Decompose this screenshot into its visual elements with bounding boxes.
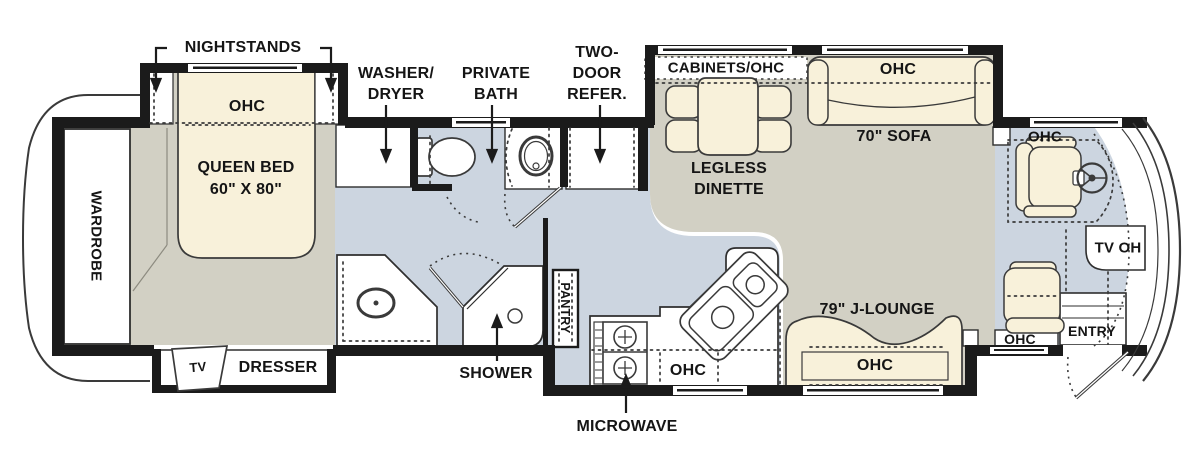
- private-bath-label-1: PRIVATE: [462, 65, 530, 83]
- washer-dryer-closet: [336, 125, 412, 187]
- nightstands-label: NIGHTSTANDS: [185, 39, 302, 57]
- washer-dryer-label-2: DRYER: [368, 86, 424, 104]
- dinette-bench-left: [666, 86, 702, 118]
- tv-oh-label: TV OH: [1095, 240, 1142, 257]
- nightstand-right: [315, 68, 339, 124]
- dinette-label-2: DINETTE: [694, 181, 764, 199]
- refer-label-2: DOOR: [573, 65, 622, 83]
- microwave-label: MICROWAVE: [576, 418, 677, 436]
- cabinets-ohc-label: CABINETS/OHC: [668, 60, 785, 77]
- jlounge-end-table: [963, 330, 978, 346]
- passenger-seat: [1004, 262, 1064, 333]
- entry-door-opening: [1063, 345, 1122, 356]
- washer-dryer-label-1: WASHER/: [358, 65, 434, 83]
- queen-bed-size: 60" X 80": [210, 181, 282, 199]
- dresser-label: DRESSER: [239, 359, 318, 377]
- bed-ohc-label: OHC: [229, 98, 265, 116]
- rear-bath-sink-drain: [374, 301, 379, 306]
- private-bath-label-2: BATH: [474, 86, 518, 104]
- wardrobe-label: WARDROBE: [88, 191, 105, 282]
- entry-label: ENTRY: [1068, 323, 1116, 339]
- dinette-table: [698, 78, 758, 155]
- driver-seat: [1016, 137, 1081, 217]
- jlounge-label: 79" J-LOUNGE: [820, 301, 935, 319]
- sofa-ohc-label: OHC: [880, 61, 916, 79]
- refer-label-3: REFER.: [567, 86, 627, 104]
- entry-door: [1068, 352, 1128, 398]
- refrigerator: [566, 125, 640, 189]
- tv-label: TV: [189, 359, 207, 375]
- driver-ohc-label: OHC: [1028, 129, 1062, 146]
- jlounge-ohc-label: OHC: [857, 357, 893, 375]
- dinette: [666, 78, 791, 155]
- refer-label-1: TWO-: [575, 44, 618, 62]
- passenger-ohc-label: OHC: [1004, 331, 1036, 347]
- rv-floorplan: NIGHTSTANDS OHC QUEEN BED 60" X 80" WARD…: [0, 0, 1200, 453]
- nightstand-left: [146, 68, 173, 124]
- pantry-label: PANTRY: [558, 282, 572, 333]
- kitchen-ohc-label: OHC: [670, 362, 706, 380]
- sofa-label: 70" SOFA: [857, 128, 932, 146]
- cooktop: [594, 322, 647, 384]
- queen-bed-label: QUEEN BED: [198, 159, 295, 177]
- shower-label: SHOWER: [459, 365, 532, 383]
- toilet: [416, 138, 475, 176]
- dinette-label-1: LEGLESS: [691, 160, 767, 178]
